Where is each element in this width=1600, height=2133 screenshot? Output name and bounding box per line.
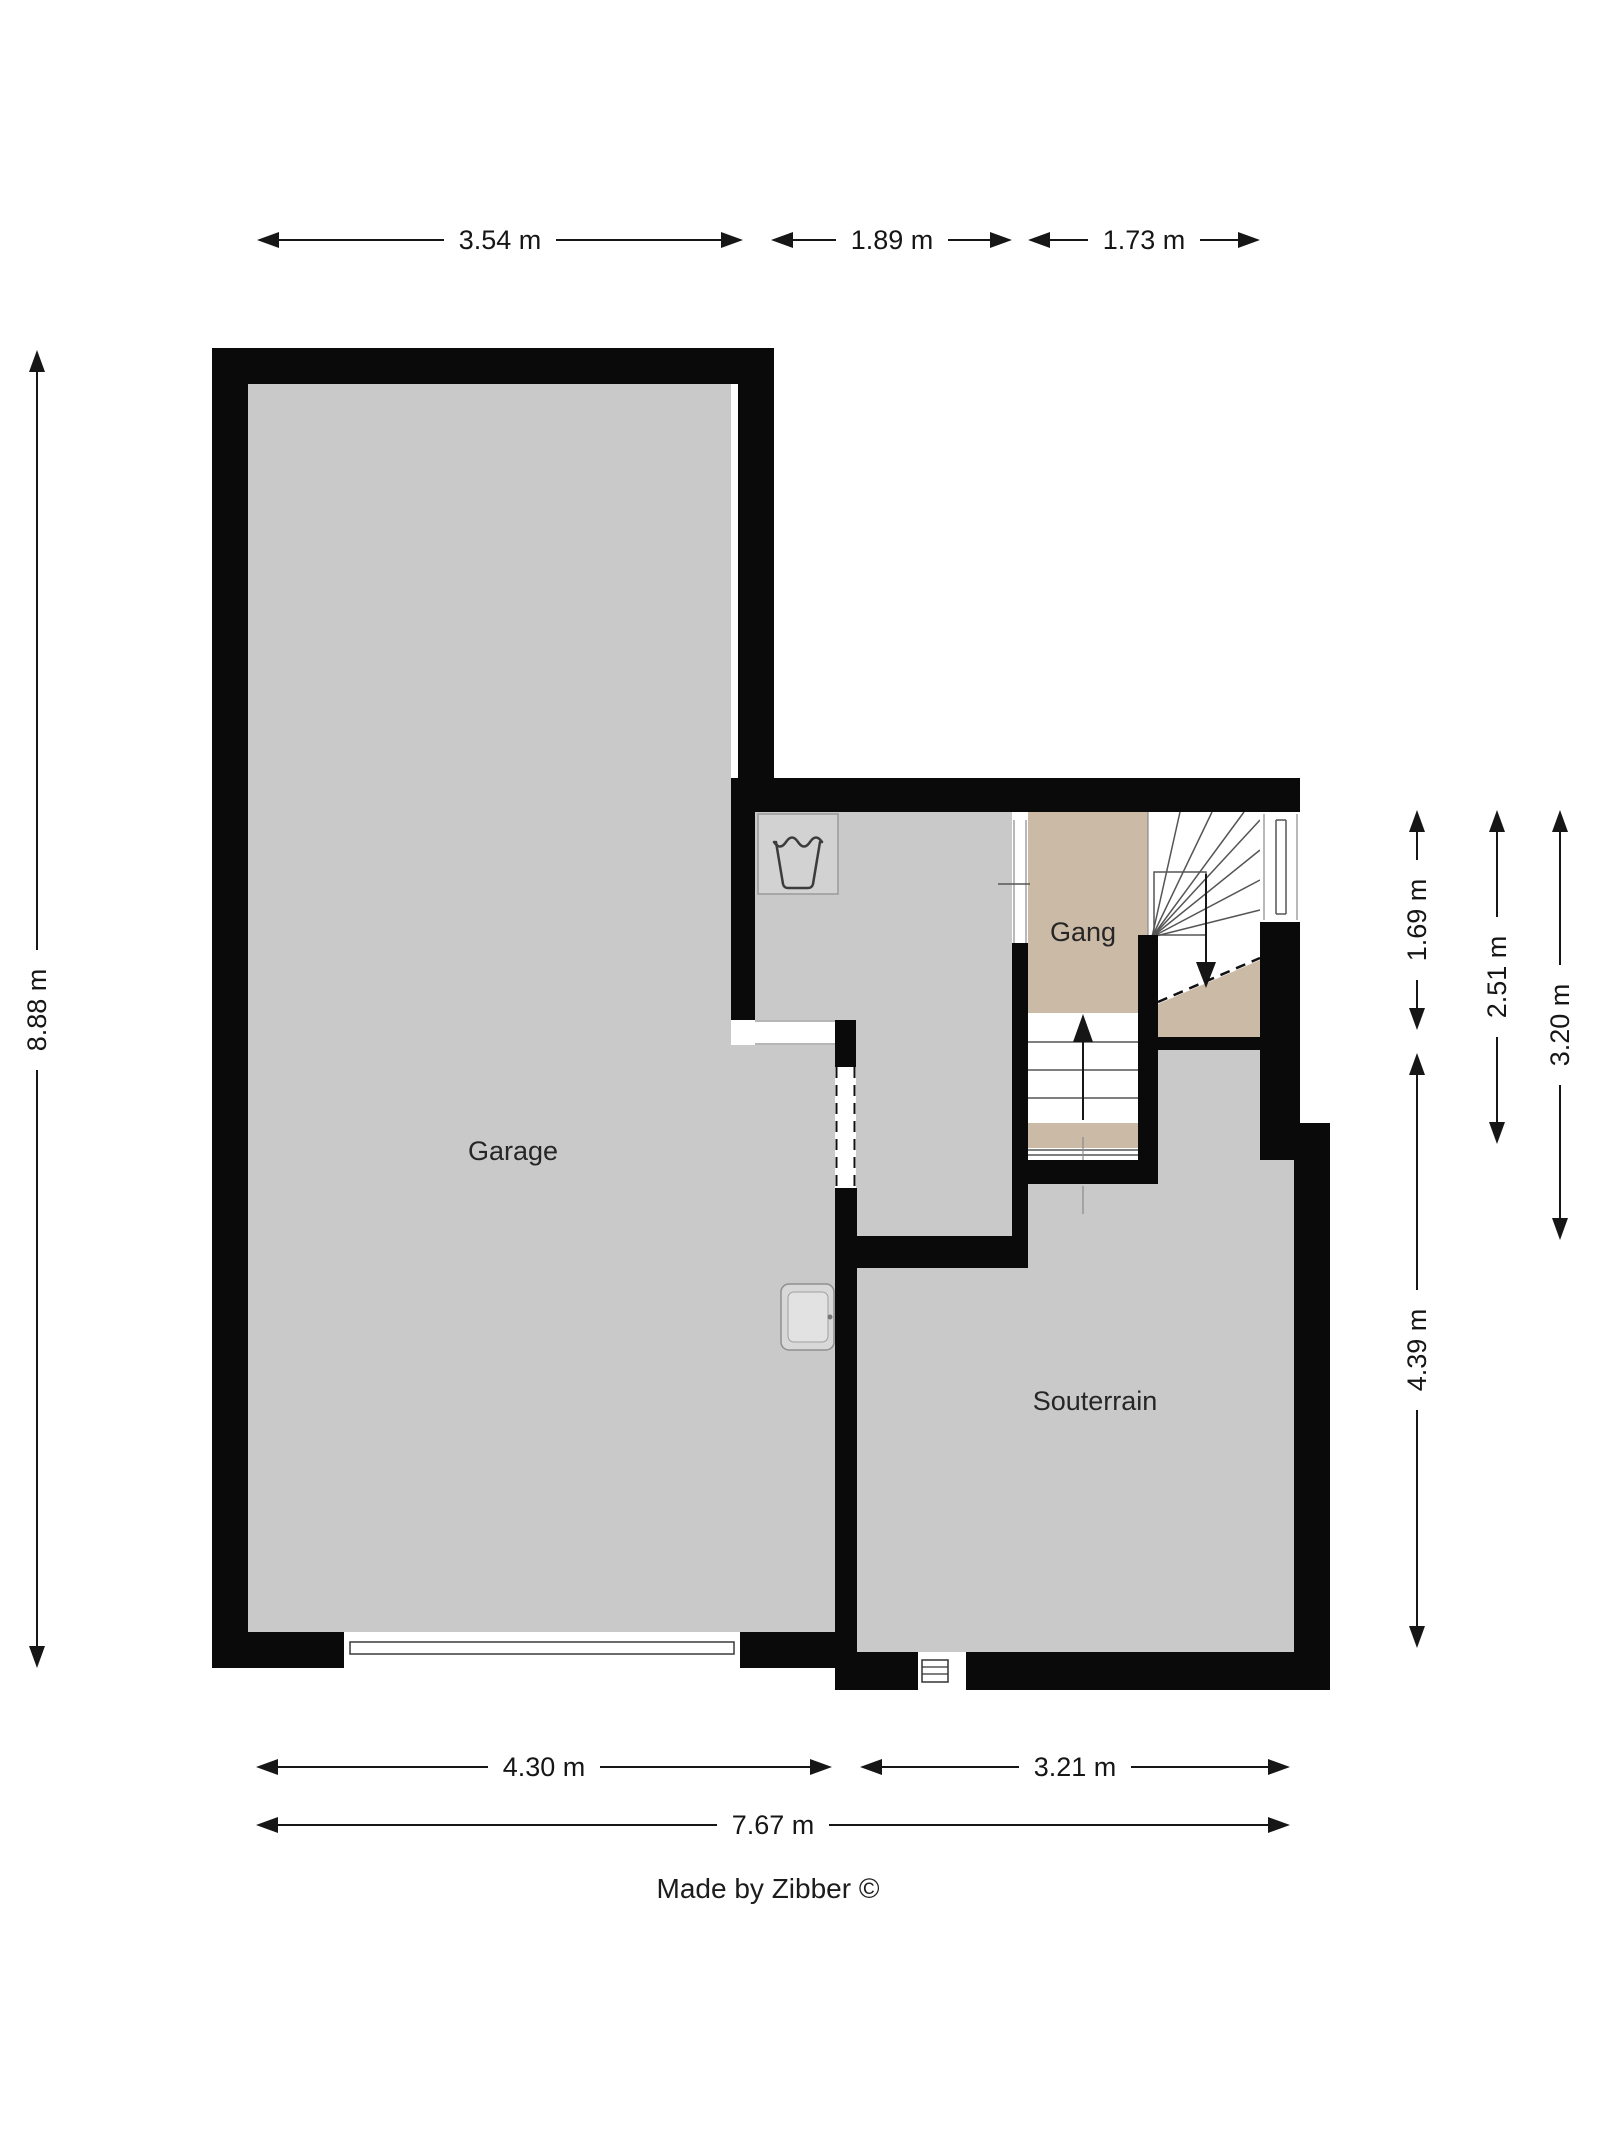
hall-floor bbox=[1028, 812, 1148, 1013]
svg-text:4.39 m: 4.39 m bbox=[1402, 1309, 1432, 1392]
svg-text:4.30 m: 4.30 m bbox=[503, 1752, 586, 1782]
dim-right-4: 4.39 m bbox=[1399, 1053, 1435, 1648]
dim-bottom-3: 7.67 m bbox=[256, 1807, 1290, 1843]
dim-left-1: 8.88 m bbox=[19, 350, 55, 1668]
room-label-souterrain: Souterrain bbox=[1033, 1386, 1158, 1416]
dim-top-2: 1.89 m bbox=[771, 222, 1012, 258]
washing-machine-icon bbox=[758, 814, 838, 894]
svg-text:3.54 m: 3.54 m bbox=[459, 225, 542, 255]
wall-post bbox=[835, 1020, 856, 1067]
dim-right-1: 1.69 m bbox=[1399, 810, 1435, 1030]
room-label-garage: Garage bbox=[468, 1136, 558, 1166]
wall-souterrain-bottom bbox=[835, 1652, 1330, 1690]
wall-laundry-bottom bbox=[856, 1236, 1028, 1268]
wall-hall-east bbox=[1012, 943, 1028, 1240]
wall-stair-divider bbox=[1138, 935, 1158, 1184]
wall-garage-top bbox=[212, 348, 774, 384]
dim-bottom-2: 3.21 m bbox=[860, 1749, 1290, 1785]
wall-right-lower bbox=[1294, 1160, 1330, 1690]
credit-text: Made by Zibber © bbox=[657, 1873, 880, 1904]
svg-text:1.89 m: 1.89 m bbox=[851, 225, 934, 255]
room-label-gang: Gang bbox=[1050, 917, 1116, 947]
dim-top-3: 1.73 m bbox=[1028, 222, 1260, 258]
svg-text:2.51 m: 2.51 m bbox=[1482, 936, 1512, 1019]
wall-garage-right-exterior bbox=[738, 348, 774, 812]
wall-garage-laundry bbox=[731, 812, 755, 1020]
sink-icon bbox=[781, 1284, 834, 1350]
open-connection bbox=[835, 1067, 856, 1188]
dim-right-2: 2.51 m bbox=[1479, 810, 1515, 1144]
floorplan-drawing: Garage Gang Souterrain 3.54 m 1.89 m 1.7… bbox=[0, 0, 1600, 2133]
window-icon bbox=[1260, 812, 1300, 922]
wall-left bbox=[212, 348, 248, 1668]
svg-text:7.67 m: 7.67 m bbox=[732, 1810, 815, 1840]
svg-text:1.69 m: 1.69 m bbox=[1402, 879, 1432, 962]
dim-top-1: 3.54 m bbox=[257, 222, 743, 258]
floorplan-page: Garage Gang Souterrain 3.54 m 1.89 m 1.7… bbox=[0, 0, 1600, 2133]
garage-laundry-doorway bbox=[755, 1020, 835, 1045]
svg-text:3.20 m: 3.20 m bbox=[1545, 984, 1575, 1067]
basement-window-glyph bbox=[922, 1660, 948, 1682]
wall-souterrain-step bbox=[1260, 1123, 1330, 1160]
dim-bottom-1: 4.30 m bbox=[256, 1749, 832, 1785]
dim-right-3: 3.20 m bbox=[1542, 810, 1578, 1240]
garage-floor bbox=[248, 384, 731, 1632]
svg-text:3.21 m: 3.21 m bbox=[1034, 1752, 1117, 1782]
garage-door-panel bbox=[350, 1642, 734, 1654]
wall-right-upper bbox=[1260, 922, 1300, 1123]
svg-text:1.73 m: 1.73 m bbox=[1103, 225, 1186, 255]
wall-souterrain-west bbox=[835, 1188, 857, 1690]
wall-stair-threshold bbox=[1028, 1160, 1158, 1184]
wall-section-top bbox=[731, 778, 1300, 812]
svg-text:8.88 m: 8.88 m bbox=[22, 969, 52, 1052]
wall-below-winder bbox=[1158, 1037, 1260, 1050]
